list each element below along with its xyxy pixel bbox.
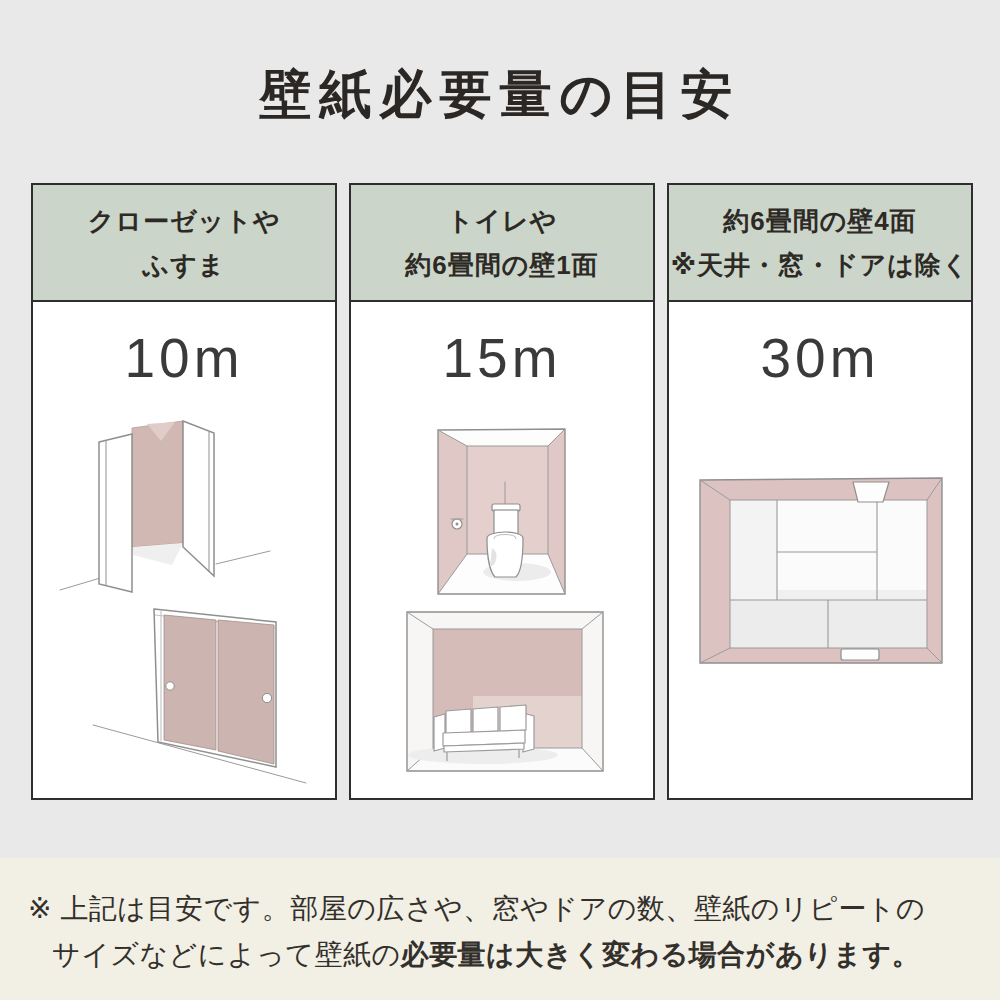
column-3-header-line1: 約6畳間の壁4面 bbox=[723, 199, 917, 243]
column-2-amount: 15m bbox=[351, 302, 653, 414]
footnote-line-1: ※ 上記は目安です。部屋の広さや、窓やドアの数、壁紙のリピートの bbox=[28, 886, 1000, 932]
column-toilet-one-wall: トイレや 約6畳間の壁1面 15m bbox=[349, 183, 655, 800]
fusuma-sliding-doors-illustration bbox=[33, 604, 339, 804]
room-perimeter-walls bbox=[700, 478, 942, 663]
fusuma-left-panel bbox=[164, 615, 216, 750]
closet-right-door bbox=[183, 421, 214, 576]
closet-interior-wall bbox=[132, 421, 183, 565]
column-3-illustrations bbox=[669, 414, 971, 798]
column-2-header-line1: トイレや bbox=[447, 199, 557, 243]
column-2-header-line2: 約6畳間の壁1面 bbox=[405, 243, 599, 287]
estimate-columns: クローゼットや ふすま 10m bbox=[31, 183, 973, 800]
room-one-accent-wall-sofa-illustration bbox=[351, 599, 657, 799]
column-3-header: 約6畳間の壁4面 ※天井・窓・ドアは除く bbox=[669, 185, 971, 302]
column-1-amount: 10m bbox=[33, 302, 335, 414]
window-cutout bbox=[853, 482, 889, 502]
column-2-header: トイレや 約6畳間の壁1面 bbox=[351, 185, 653, 302]
column-four-walls: 約6畳間の壁4面 ※天井・窓・ドアは除く 30m bbox=[667, 183, 973, 800]
column-1-header-line2: ふすま bbox=[143, 243, 226, 287]
footnote: ※ 上記は目安です。部屋の広さや、窓やドアの数、壁紙のリピートの サイズなどによ… bbox=[0, 858, 1000, 1000]
closet-left-door bbox=[99, 434, 132, 592]
toilet-room-illustration bbox=[351, 414, 657, 599]
fusuma-right-panel bbox=[218, 620, 274, 764]
open-closet-illustration bbox=[33, 414, 339, 604]
column-2-illustrations bbox=[351, 414, 653, 799]
column-1-illustrations bbox=[33, 414, 335, 804]
six-tatami-room-top-view-illustration bbox=[669, 468, 975, 708]
column-3-amount: 30m bbox=[669, 302, 971, 414]
column-3-header-line2: ※天井・窓・ドアは除く bbox=[671, 243, 970, 287]
page-title: 壁紙必要量の目安 bbox=[0, 60, 1000, 130]
column-1-header-line1: クローゼットや bbox=[88, 199, 281, 243]
column-1-header: クローゼットや ふすま bbox=[33, 185, 335, 302]
toilet-paper-holder bbox=[451, 519, 463, 529]
column-closet-fusuma: クローゼットや ふすま 10m bbox=[31, 183, 337, 800]
door-cutout bbox=[841, 649, 879, 660]
footnote-line-2: サイズなどによって壁紙の必要量は大きく変わる場合があります。 bbox=[28, 932, 1000, 978]
footnote-emphasis: 必要量は大きく変わる場合があります。 bbox=[401, 939, 921, 970]
